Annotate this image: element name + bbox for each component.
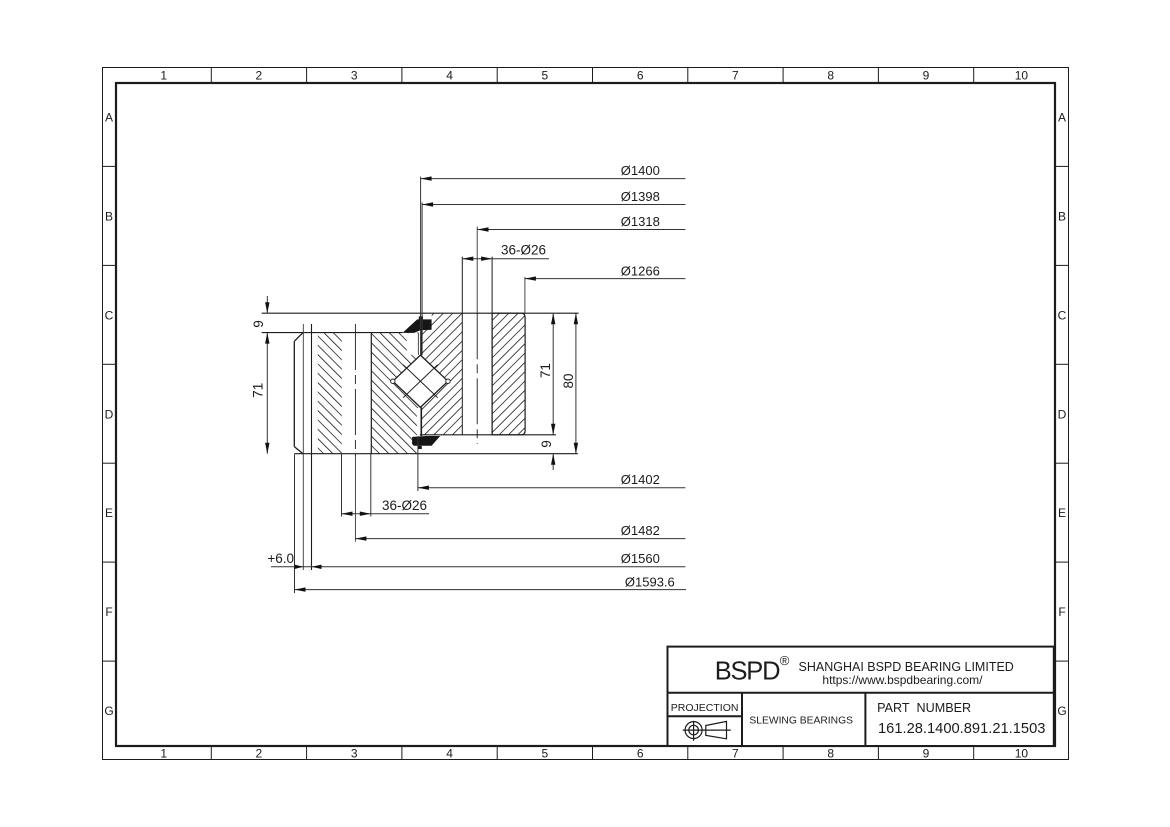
svg-text:71: 71 xyxy=(251,383,266,398)
svg-text:9: 9 xyxy=(251,320,266,328)
svg-text:9: 9 xyxy=(923,747,930,761)
svg-text:PROJECTION: PROJECTION xyxy=(671,702,739,714)
svg-text:Ø1266: Ø1266 xyxy=(621,264,660,279)
svg-text:2: 2 xyxy=(256,69,263,83)
svg-text:3: 3 xyxy=(351,69,358,83)
svg-text:36-Ø26: 36-Ø26 xyxy=(501,242,546,257)
svg-text:8: 8 xyxy=(827,69,834,83)
svg-text:2: 2 xyxy=(256,747,263,761)
svg-text:7: 7 xyxy=(732,747,739,761)
svg-text:B: B xyxy=(1058,209,1066,223)
svg-text:Ø1318: Ø1318 xyxy=(621,214,660,229)
svg-text:F: F xyxy=(1058,605,1065,619)
svg-text:D: D xyxy=(1058,407,1067,421)
svg-text:1: 1 xyxy=(160,69,167,83)
svg-text:https://www.bspdbearing.com/: https://www.bspdbearing.com/ xyxy=(822,673,983,687)
svg-text:6: 6 xyxy=(637,69,644,83)
svg-text:9: 9 xyxy=(923,69,930,83)
svg-text:4: 4 xyxy=(446,747,453,761)
svg-text:10: 10 xyxy=(1015,69,1029,83)
svg-text:5: 5 xyxy=(542,69,549,83)
svg-text:F: F xyxy=(105,605,112,619)
svg-text:8: 8 xyxy=(827,747,834,761)
svg-text:PART NUMBER: PART NUMBER xyxy=(877,701,971,715)
svg-text:36-Ø26: 36-Ø26 xyxy=(382,498,427,513)
svg-text:Ø1593.6: Ø1593.6 xyxy=(625,574,675,589)
svg-text:®: ® xyxy=(780,653,790,668)
svg-text:Ø1560: Ø1560 xyxy=(621,551,660,566)
svg-text:G: G xyxy=(104,704,113,718)
svg-text:3: 3 xyxy=(351,747,358,761)
svg-text:E: E xyxy=(1058,506,1066,520)
svg-text:E: E xyxy=(105,506,113,520)
svg-text:1: 1 xyxy=(160,747,167,761)
svg-text:4: 4 xyxy=(446,69,453,83)
svg-text:D: D xyxy=(105,407,114,421)
svg-text:C: C xyxy=(105,308,114,322)
svg-text:B: B xyxy=(105,209,113,223)
svg-text:Ø1402: Ø1402 xyxy=(621,472,660,487)
svg-text:161.28.1400.891.21.1503: 161.28.1400.891.21.1503 xyxy=(878,721,1045,737)
svg-text:Ø1398: Ø1398 xyxy=(621,189,660,204)
svg-text:Ø1400: Ø1400 xyxy=(621,163,660,178)
svg-text:71: 71 xyxy=(538,363,553,378)
svg-text:SHANGHAI BSPD BEARING LIMITED: SHANGHAI BSPD BEARING LIMITED xyxy=(799,660,1014,674)
svg-text:+6.0: +6.0 xyxy=(267,551,294,566)
svg-text:SLEWING BEARINGS: SLEWING BEARINGS xyxy=(749,716,853,727)
svg-text:G: G xyxy=(1057,704,1066,718)
svg-text:C: C xyxy=(1058,308,1067,322)
svg-text:A: A xyxy=(1058,111,1066,125)
svg-text:5: 5 xyxy=(542,747,549,761)
svg-text:9: 9 xyxy=(539,440,554,448)
svg-text:BSPD: BSPD xyxy=(715,657,780,685)
svg-text:A: A xyxy=(105,111,113,125)
svg-text:7: 7 xyxy=(732,69,739,83)
svg-text:80: 80 xyxy=(561,373,576,388)
svg-text:6: 6 xyxy=(637,747,644,761)
svg-text:Ø1482: Ø1482 xyxy=(621,523,660,538)
svg-text:10: 10 xyxy=(1015,747,1029,761)
